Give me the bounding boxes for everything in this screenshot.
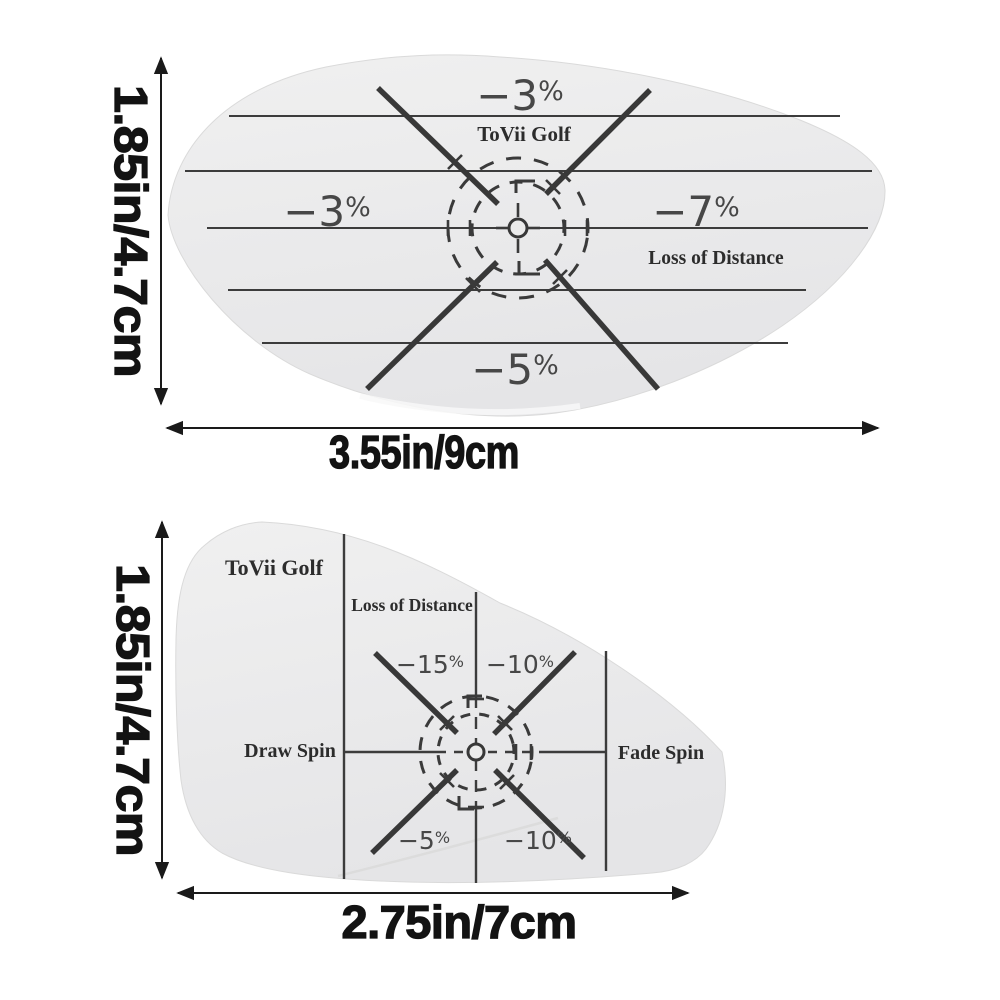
driver-height-label: 1.85in/4.7cm	[105, 85, 157, 377]
driver-sticker: −3% ToVii Golf −3% −7% Loss of Distance …	[168, 55, 885, 416]
diagram-canvas: −3% ToVii Golf −3% −7% Loss of Distance …	[0, 0, 1000, 1000]
distance-note-label: Loss of Distance	[648, 248, 784, 269]
distance-note-label: Loss of Distance	[351, 595, 473, 615]
percent-sign: %	[345, 192, 371, 223]
percent-sign: %	[435, 828, 450, 847]
driver-width-dimension: 3.55in/9cm	[167, 426, 878, 478]
zone-value: −3	[283, 187, 345, 236]
zone-value: −5	[471, 345, 533, 394]
percent-sign: %	[533, 350, 559, 381]
draw-spin-label: Draw Spin	[244, 740, 336, 762]
zone-value: −5	[398, 826, 435, 855]
iron-height-label: 1.85in/4.7cm	[107, 564, 159, 856]
fade-spin-label: Fade Spin	[618, 742, 704, 764]
sweet-spot-circle	[509, 219, 527, 237]
percent-sign: %	[449, 652, 464, 671]
iron-width-label: 2.75in/7cm	[342, 896, 577, 948]
percent-sign: %	[539, 652, 554, 671]
zone-value: −10	[504, 826, 557, 855]
percent-sign: %	[714, 192, 740, 223]
sweet-spot-circle	[468, 744, 484, 760]
product-size-diagram: −3% ToVii Golf −3% −7% Loss of Distance …	[0, 0, 1000, 1000]
percent-sign: %	[538, 76, 564, 107]
brand-label: ToVii Golf	[225, 555, 324, 580]
driver-width-label: 3.55in/9cm	[329, 426, 519, 478]
zone-value: −3	[476, 71, 538, 120]
zone-value: −15	[396, 650, 449, 679]
zone-value: −7	[652, 187, 714, 236]
percent-sign: %	[557, 828, 572, 847]
zone-value: −10	[486, 650, 539, 679]
brand-label: ToVii Golf	[477, 122, 572, 146]
driver-height-dimension: 1.85in/4.7cm	[105, 58, 161, 404]
iron-sticker: ToVii Golf Loss of Distance −15% −10% Dr…	[176, 522, 726, 883]
iron-width-dimension: 2.75in/7cm	[178, 893, 688, 948]
iron-height-dimension: 1.85in/4.7cm	[107, 522, 162, 878]
